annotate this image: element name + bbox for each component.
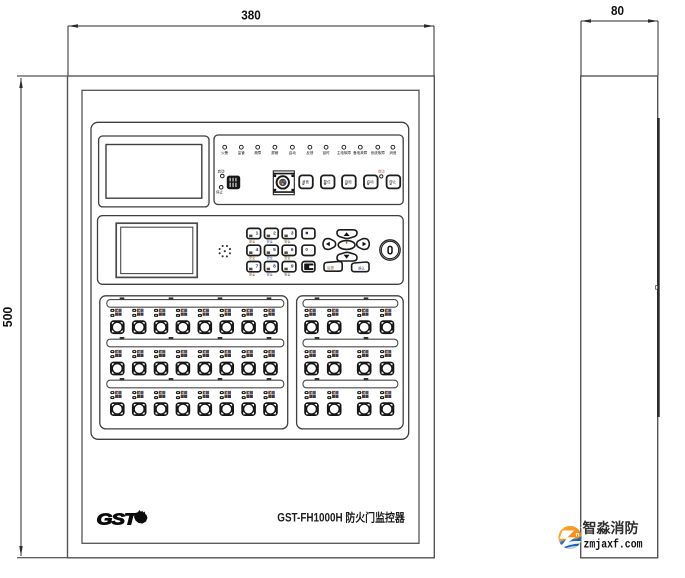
- svg-text:系统故障: 系统故障: [371, 150, 385, 155]
- svg-text:安全: 安全: [284, 272, 291, 277]
- svg-text:故障: 故障: [254, 150, 262, 155]
- svg-text:启动: 启动: [367, 179, 375, 184]
- svg-text:0: 0: [305, 247, 308, 252]
- svg-text:zmjaxf.com: zmjaxf.com: [584, 538, 643, 551]
- svg-text:复位: 复位: [324, 179, 332, 184]
- svg-text:火警: 火警: [221, 150, 228, 155]
- svg-text:安全: 安全: [267, 255, 274, 260]
- svg-text:安全: 安全: [267, 238, 274, 243]
- svg-text:2: 2: [273, 230, 276, 236]
- svg-text:5: 5: [273, 247, 276, 253]
- svg-text:n: n: [576, 532, 580, 539]
- svg-text:3: 3: [291, 230, 294, 236]
- svg-text:安全: 安全: [267, 272, 274, 277]
- svg-text:停止: 停止: [389, 179, 397, 184]
- svg-text:启动: 启动: [218, 169, 225, 174]
- svg-text:消音: 消音: [302, 179, 310, 184]
- svg-text:屏蔽: 屏蔽: [271, 150, 278, 155]
- svg-text:后退: 后退: [327, 265, 334, 270]
- svg-text:4: 4: [256, 247, 259, 253]
- svg-text:安全: 安全: [249, 238, 256, 243]
- svg-text:80: 80: [611, 4, 624, 18]
- svg-text:8: 8: [273, 263, 276, 269]
- svg-text:停止: 停止: [216, 190, 223, 195]
- svg-text:安全: 安全: [249, 272, 256, 277]
- svg-text:备电故障: 备电故障: [353, 150, 367, 155]
- svg-text:确认: 确认: [358, 265, 365, 270]
- svg-text:延时: 延时: [323, 150, 330, 155]
- svg-text:消音: 消音: [389, 150, 396, 155]
- svg-text:反馈: 反馈: [306, 150, 313, 155]
- svg-text:安全: 安全: [284, 238, 291, 243]
- svg-text:智淼消防: 智淼消防: [583, 520, 639, 537]
- svg-text:6: 6: [291, 247, 294, 253]
- svg-text:9: 9: [291, 263, 294, 269]
- svg-text:安全: 安全: [249, 255, 256, 260]
- svg-text:GST-FH1000H 防火门监控器: GST-FH1000H 防火门监控器: [277, 511, 405, 525]
- svg-text:监管: 监管: [238, 150, 245, 155]
- svg-text:主电故障: 主电故障: [337, 150, 351, 155]
- svg-text:安全: 安全: [284, 255, 291, 260]
- svg-text:GST: GST: [97, 511, 139, 528]
- svg-text:自动: 自动: [378, 168, 385, 173]
- svg-text:380: 380: [241, 9, 261, 23]
- svg-text:自检: 自检: [345, 179, 353, 184]
- svg-text:7: 7: [256, 263, 259, 269]
- svg-text:启动: 启动: [289, 150, 296, 155]
- svg-text:1: 1: [256, 230, 259, 236]
- svg-text:500: 500: [0, 307, 15, 328]
